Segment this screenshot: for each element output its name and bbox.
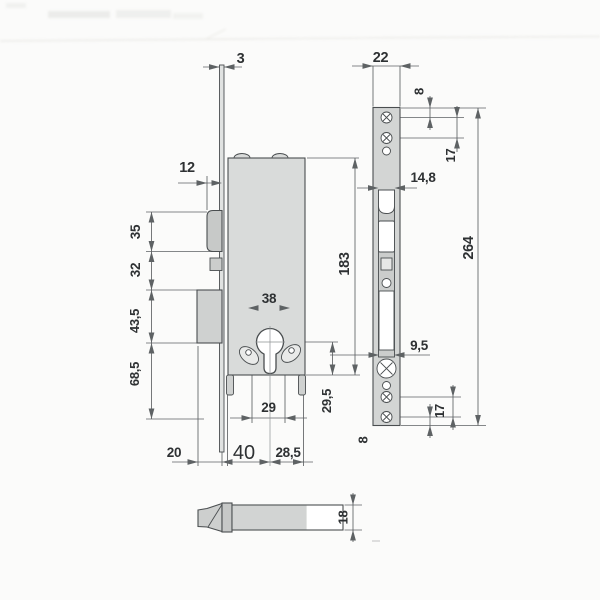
dimension-arrow <box>400 63 411 69</box>
scan-artifacts <box>0 3 600 41</box>
dimension-arrow <box>475 108 481 119</box>
side-view <box>197 65 306 466</box>
body-bottom-tab-right <box>299 375 306 395</box>
latch-window <box>379 221 395 252</box>
dimension-arrow <box>427 98 433 109</box>
dimension-arrow <box>475 415 481 426</box>
deadbolt-window <box>379 291 394 350</box>
lug-screw-hole-right <box>289 348 295 354</box>
latch-bolt-side <box>207 211 222 252</box>
faceplate-hole <box>382 279 391 288</box>
bolt-body-shading <box>233 506 307 530</box>
dim-label-edge-to-hole-top: 8 <box>412 88 427 95</box>
dimension-arrow <box>450 417 456 428</box>
dimension-arrow <box>350 530 356 541</box>
dim-label-cylinder-slot-width: 29 <box>261 400 275 415</box>
dimension-arrow <box>363 63 374 69</box>
dimension-arrow <box>149 212 155 223</box>
dim-label-cylinder-to-bottom: 29,5 <box>319 389 334 413</box>
auxiliary-latch <box>210 258 222 271</box>
dimension-arrow <box>350 495 356 506</box>
scan-smudge <box>116 10 171 18</box>
dimension-arrow <box>260 459 271 465</box>
dimension-arrow <box>427 118 433 129</box>
dim-label-latch-projection: 12 <box>179 160 195 176</box>
dimension-arrow <box>285 415 296 421</box>
dimension-arrow <box>149 409 155 420</box>
dim-label-channel-width: 14,8 <box>410 170 436 185</box>
dimension-arrow <box>197 180 208 186</box>
dim-label-faceplate-length: 264 <box>461 236 477 260</box>
dim-label-hole-spacing-top: 17 <box>443 149 458 163</box>
scan-smudge <box>48 11 110 18</box>
body-bottom-tab-left <box>227 375 234 395</box>
dim-label-bolt-throw: 20 <box>167 445 181 460</box>
dimension-arrow <box>188 459 199 465</box>
dim-label-body-height: 183 <box>337 252 353 276</box>
dimension-arrow <box>149 280 155 291</box>
lock-technical-drawing: 3 12 35 32 43,5 68,5 183 38 29 29,5 20 4… <box>0 0 600 600</box>
dim-label-latch-height: 35 <box>128 224 143 239</box>
dim-label-faceplate-thickness: 3 <box>237 51 245 67</box>
deadbolt-side <box>197 290 222 343</box>
dimension-arrow <box>209 64 220 70</box>
deadlatch-pin-window <box>381 258 392 270</box>
dimension-arrow <box>454 138 460 149</box>
technical-drawing-canvas: 3 12 35 32 43,5 68,5 183 38 29 29,5 20 4… <box>0 0 600 600</box>
bolt-tip <box>198 504 222 532</box>
dim-label-cylinder-screws-width: 38 <box>262 291 277 306</box>
dim-label-hole-spacing-bottom: 17 <box>432 404 447 418</box>
bolt-collar <box>222 503 232 532</box>
dim-label-hole-to-edge-bottom: 8 <box>356 436 371 443</box>
fixing-hole-bottom-1 <box>383 382 391 390</box>
front-view <box>373 108 400 426</box>
dimension-arrow <box>330 342 336 353</box>
dimension-arrow <box>242 415 253 421</box>
lug-screw-hole-left <box>246 350 252 356</box>
scan-fold-line <box>0 37 600 42</box>
dimension-arrow <box>149 333 155 344</box>
dim-label-bolt-window-width: 9,5 <box>410 338 429 353</box>
dimension-arrow <box>450 387 456 398</box>
dim-label-faceplate-width: 22 <box>373 50 389 66</box>
dimension-arrow <box>224 64 235 70</box>
dimension-arrow <box>330 365 336 376</box>
dimension-arrow <box>149 241 155 252</box>
dim-label-deadbolt-height: 43,5 <box>127 309 142 333</box>
dimension-arrow <box>149 252 155 263</box>
dim-label-body-depth-rear: 28,5 <box>275 445 301 460</box>
dim-label-latch-to-deadbolt: 32 <box>128 263 143 277</box>
fixing-hole-top-3 <box>383 147 391 155</box>
dimension-arrow <box>149 343 155 354</box>
dim-label-bolt-height: 18 <box>336 511 351 525</box>
auxiliary-window <box>379 190 395 214</box>
dim-label-backset: 40 <box>233 442 255 464</box>
scan-mark <box>204 29 226 40</box>
dimension-arrow <box>149 290 155 301</box>
dimension-arrow <box>352 158 358 169</box>
scan-smudge <box>6 3 26 8</box>
dim-label-below-deadbolt: 68,5 <box>127 362 142 386</box>
dimension-arrow <box>427 426 433 437</box>
scan-smudge <box>173 13 203 19</box>
dimension-arrow <box>454 107 460 118</box>
dimension-arrow <box>352 365 358 376</box>
body-top-boss-right <box>272 154 288 159</box>
body-top-boss-left <box>234 154 250 159</box>
